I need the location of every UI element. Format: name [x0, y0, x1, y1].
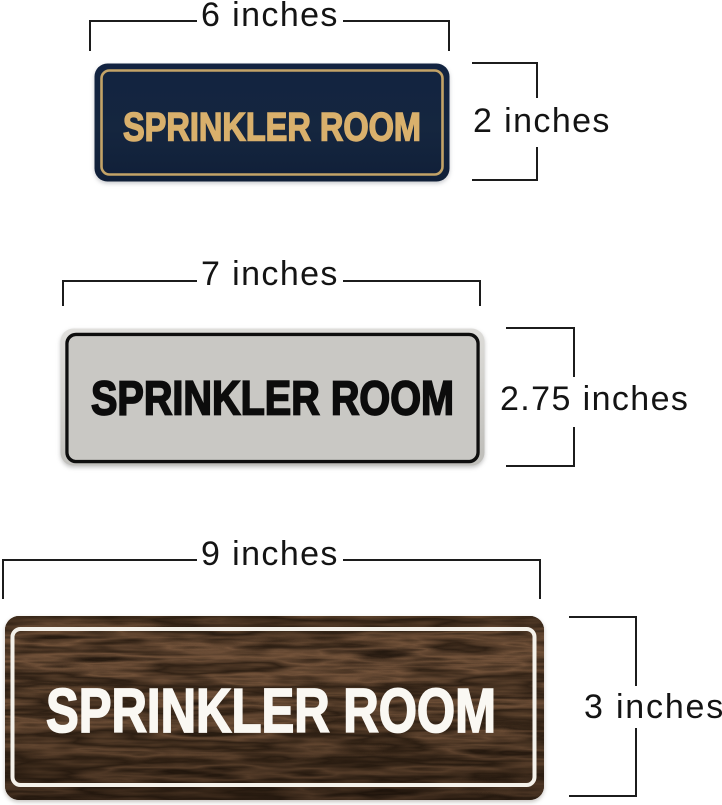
svg-text:SPRINKLER ROOM: SPRINKLER ROOM: [46, 677, 496, 746]
svg-text:SPRINKLER ROOM: SPRINKLER ROOM: [123, 106, 421, 150]
svg-text:SPRINKLER ROOM: SPRINKLER ROOM: [91, 373, 454, 426]
